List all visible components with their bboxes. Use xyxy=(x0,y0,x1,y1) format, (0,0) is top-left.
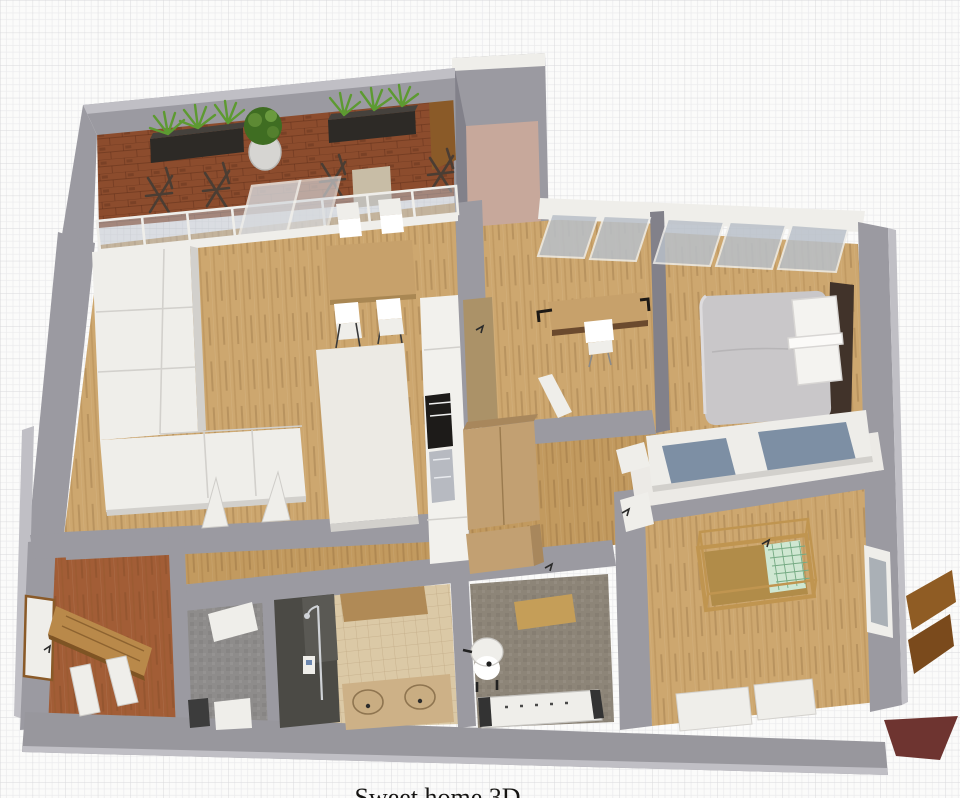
pillows xyxy=(788,296,843,385)
kitchen-island xyxy=(316,343,419,532)
hall-closet xyxy=(463,414,544,574)
kitchen-sink xyxy=(429,449,455,503)
office-cabinet xyxy=(463,297,498,426)
double-bed xyxy=(701,282,854,428)
floor-plan-render: Sweet home 3D xyxy=(0,0,960,798)
laundry-cabinet xyxy=(214,698,252,730)
dining-table xyxy=(326,240,416,302)
floor-plan-canvas xyxy=(0,0,960,798)
shower-cabin xyxy=(274,594,340,728)
washing-machine xyxy=(188,698,210,728)
caption-text: Sweet home 3D xyxy=(0,784,875,798)
